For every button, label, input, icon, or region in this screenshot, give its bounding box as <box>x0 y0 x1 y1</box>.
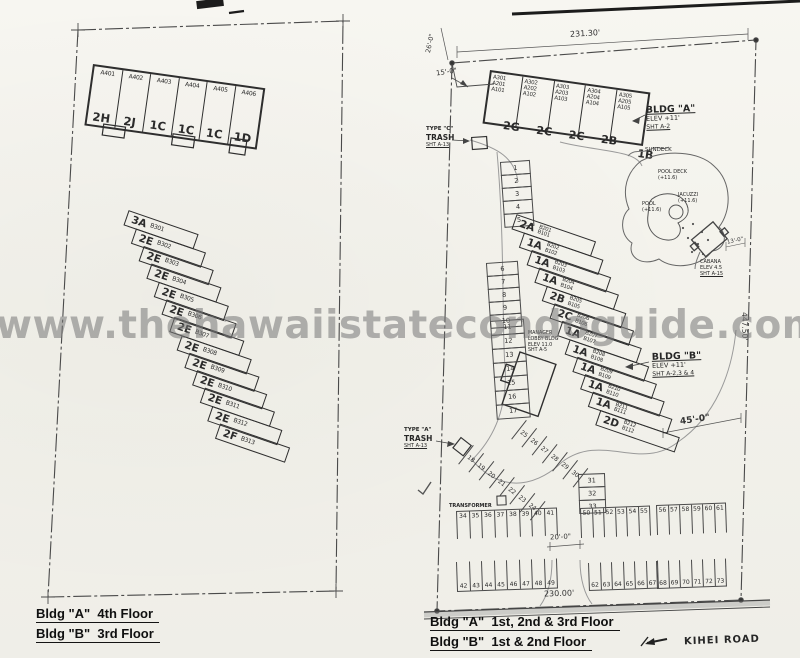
parking-stall: 60 <box>702 504 715 533</box>
parking-stalls-56-61: 565758596061 <box>656 503 727 535</box>
unit-type: 2E <box>153 268 170 282</box>
parking-stall: 50 <box>580 509 593 538</box>
cabana-sheet: SHT A-15 <box>700 271 723 277</box>
manager-lobby-label: MANAGER LOBBY BLDG ELEV 11.0 SHT A-5 <box>528 331 558 354</box>
unit-type: 2A <box>518 219 536 233</box>
parking-stall: 17 <box>496 402 531 419</box>
unit-type: 1A <box>526 237 544 251</box>
parking-stalls-68-73: 686970717273 <box>656 559 727 589</box>
unit-type: 2E <box>176 322 193 336</box>
parking-stall: 62 <box>588 563 600 590</box>
unit-type: 2B <box>549 290 567 304</box>
unit-number: B302 <box>156 239 172 250</box>
floor-caption: Bldg "B" 3rd Floor <box>36 626 160 643</box>
pool-deck-elev: (+11.6) <box>658 175 687 181</box>
parking-stalls-34-41: 3435363738394041 <box>456 507 558 539</box>
dim-right: 447.50' <box>740 312 749 340</box>
unit-number: B303 <box>164 257 180 268</box>
dim-top: 231.30' <box>570 28 601 39</box>
unit-type: 2C <box>556 308 573 322</box>
pool-elev: (+11.6) <box>642 207 661 213</box>
unit-type: 2E <box>145 251 162 265</box>
sundeck-label: SUNDECK <box>645 147 672 154</box>
parking-stall: 54 <box>626 507 639 536</box>
parking-stall: 59 <box>691 504 704 533</box>
unit-type: 2F <box>222 428 239 442</box>
parking-stall: 34 <box>456 512 469 539</box>
parking-stalls-42-49: 4243444546474849 <box>456 558 558 592</box>
unit-type: 1A <box>579 361 597 375</box>
parking-stall: 53 <box>615 507 628 536</box>
unit-type: 2E <box>183 340 200 354</box>
parking-stall: 35 <box>469 511 482 538</box>
parking-stall: 39 <box>518 509 531 536</box>
parking-stall: 41 <box>543 509 556 536</box>
pool-deck-label: POOL DECK (+11.6) <box>658 169 687 181</box>
unit-type: 2D <box>602 415 620 430</box>
unit-type: 2E <box>214 411 231 425</box>
parking-stall: 64 <box>611 562 623 589</box>
parking-stall: 49 <box>543 559 557 588</box>
parking-stall: 52 <box>603 508 616 537</box>
parking-stall: 55 <box>637 507 650 536</box>
unit-type: 2E <box>161 286 178 300</box>
check-scribble <box>418 482 431 494</box>
scan-artifacts <box>197 0 800 14</box>
unit-type: 1A <box>564 326 582 340</box>
parking-stall: 51 <box>592 508 605 537</box>
unit-type: 1A <box>587 379 605 393</box>
parking-stall: 66 <box>634 561 646 588</box>
jacuzzi-elev: (+11.6) <box>678 198 698 204</box>
unit-type: 2E <box>138 233 155 247</box>
trash-type: TYPE "A" <box>404 427 432 434</box>
parking-stall: 57 <box>668 505 681 534</box>
parking-stalls-62-67: 626364656667 <box>588 561 659 591</box>
left-bldg-a-balconies <box>102 120 247 155</box>
parking-stall: 47 <box>518 559 532 588</box>
unit-type: 2E <box>168 304 185 318</box>
floor-caption: Bldg "A" 4th Floor <box>36 606 159 623</box>
manager-line: LOBBY BLDG <box>528 337 558 343</box>
unit-number: B308 <box>202 346 218 357</box>
parking-stall: 42 <box>456 562 470 591</box>
unit-number: B304 <box>171 275 187 286</box>
unit-type: 3A <box>130 215 148 229</box>
unit-number: B301 <box>149 222 165 233</box>
unit-number: B312 <box>232 417 248 428</box>
parking-stall: 70 <box>679 560 691 587</box>
unit-type: 2E <box>191 357 208 371</box>
parking-stall: 37 <box>494 510 507 537</box>
right-plan-captions: Bldg "A" 1st, 2nd & 3rd FloorBldg "B" 1s… <box>430 614 620 654</box>
parking-stalls-50-55: 505152535455 <box>580 506 651 538</box>
parking-stall: 48 <box>531 559 545 588</box>
parking-stall: 38 <box>506 510 519 537</box>
parking-stall: 45 <box>493 560 507 589</box>
parking-stall: 43 <box>468 561 482 590</box>
bldg-b-callout: BLDG "B" ELEV +11' SHT A-2,3 & 4 <box>652 350 702 378</box>
manager-line: SHT A-5 <box>528 348 558 354</box>
transformer-label: TRANSFORMER <box>449 503 492 509</box>
parking-stall: 73 <box>713 559 725 586</box>
unit-number: B311 <box>225 399 241 410</box>
dim-bottom: 230.00' <box>544 588 574 598</box>
unit-type: 1A <box>571 344 589 358</box>
floor-caption: Bldg "A" 1st, 2nd & 3rd Floor <box>430 614 620 631</box>
unit-type: 2E <box>206 393 223 407</box>
parking-stall: 63 <box>599 562 611 589</box>
parking-stall: 36 <box>481 511 494 538</box>
pool-area <box>623 147 745 269</box>
parking-stall: 69 <box>667 560 679 587</box>
parking-stall: 65 <box>622 561 634 588</box>
unit-number: B305 <box>179 293 195 304</box>
trash-label: TRASH <box>426 133 454 142</box>
unit-type: 2E <box>199 375 216 389</box>
dim-20: 20'-0" <box>550 532 571 541</box>
trash-c-callout: TYPE "C" TRASH SHT A-13 <box>426 126 454 148</box>
unit-number: B310 <box>217 382 233 393</box>
trash-sheet: SHT A-13 <box>404 443 432 449</box>
left-plan-captions: Bldg "A" 4th FloorBldg "B" 3rd Floor <box>36 606 160 646</box>
parking-stall: 71 <box>690 559 702 586</box>
parking-stall: 44 <box>481 561 495 590</box>
dim-arrowhead <box>460 80 468 87</box>
parking-stall: 56 <box>656 506 669 535</box>
trash-a-callout: TYPE "A" TRASH SHT A-13 <box>404 427 432 449</box>
trash-type: TYPE "C" <box>426 126 454 133</box>
trash-sheet: SHT A-13 <box>426 142 454 148</box>
parking-stall: 68 <box>656 561 668 588</box>
unit-number: B307 <box>194 328 210 339</box>
unit-type: 1A <box>533 255 551 269</box>
unit-type: 1A <box>594 397 612 411</box>
unit-type: 1A <box>541 272 559 286</box>
bldg-a-callout: BLDG "A" ELEV +11' SHT A-2 <box>646 103 696 131</box>
trash-label: TRASH <box>404 434 432 443</box>
floor-caption: Bldg "B" 1st & 2nd Floor <box>430 634 592 651</box>
pool-label: POOL (+11.6) <box>642 201 661 213</box>
unit-number: B306 <box>186 311 202 322</box>
parking-stall: 58 <box>679 505 692 534</box>
parking-stall: 40 <box>531 509 544 536</box>
parking-stall: 46 <box>506 560 520 589</box>
cabana-label: CABANA ELEV 4.5 SHT A-15 <box>700 259 723 277</box>
site-plan-scan: A401 2H A402 2J A403 1C A404 1C A405 1C … <box>0 0 800 658</box>
unit-number: B309 <box>209 364 225 375</box>
jacuzzi-label: JACUZZI (+11.6) <box>678 192 698 204</box>
unit-number: B313 <box>240 435 256 446</box>
parking-stall: 72 <box>702 559 714 586</box>
parking-stall: 61 <box>713 504 726 533</box>
jacuzzi-outline <box>669 205 683 219</box>
unit-numbers: B212 B112 <box>621 420 637 435</box>
